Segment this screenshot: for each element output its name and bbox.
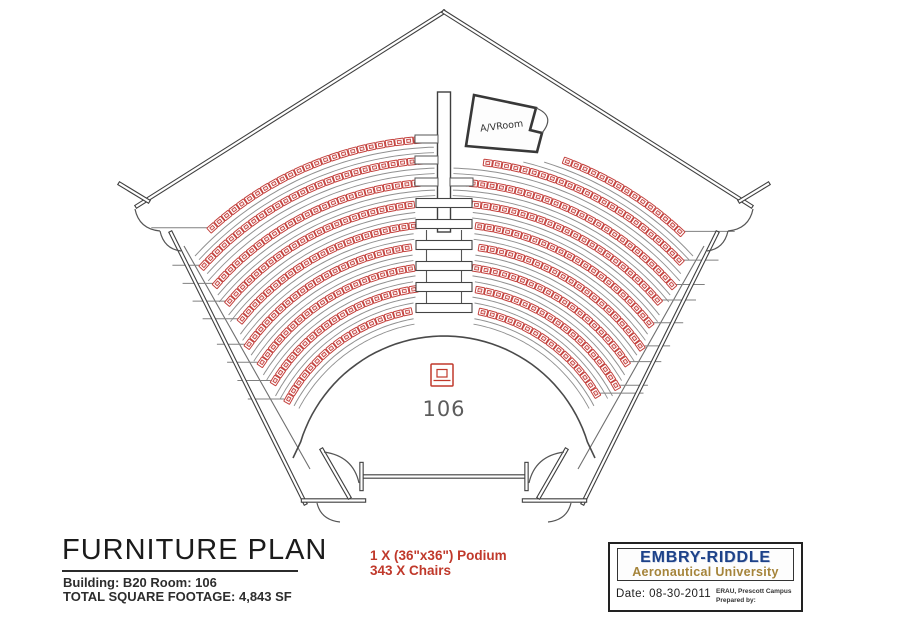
generated-plan-layer (120, 12, 768, 522)
av-room: A/VRoom (466, 95, 548, 152)
campus-line: ERAU, Prescott Campus (716, 587, 792, 596)
building-room-label: Building: B20 Room: 106 (63, 575, 217, 590)
stamp-fine-print: ERAU, Prescott Campus Prepared by: (716, 587, 792, 605)
prepared-by-line: Prepared by: (716, 596, 792, 605)
furniture-plan-page: A/VRoom 106 FURNITURE PLAN Building: B20… (0, 0, 900, 625)
center-aisle (415, 92, 473, 313)
legend-podium-line: 1 X (36"x36") Podium (370, 548, 507, 563)
podium-outline (431, 364, 453, 386)
square-footage-label: TOTAL SQUARE FOOTAGE: 4,843 SF (63, 589, 292, 604)
date-value: 08-30-2011 (649, 588, 711, 600)
logo-name-line2: Aeronautical University (618, 566, 793, 579)
floor-plan: A/VRoom 106 (0, 0, 900, 530)
logo-name-line1: EMBRY-RIDDLE (618, 549, 793, 566)
legend-chairs-line: 343 X Chairs (370, 563, 507, 578)
date-row: Date: 08-30-2011 (616, 588, 711, 600)
room-number-label: 106 (422, 397, 465, 421)
university-logo: EMBRY-RIDDLE Aeronautical University (617, 548, 794, 581)
furniture-legend: 1 X (36"x36") Podium 343 X Chairs (370, 548, 507, 578)
date-label: Date: (616, 588, 646, 600)
walls (120, 12, 768, 503)
page-title: FURNITURE PLAN (62, 534, 327, 567)
title-block-stamp: EMBRY-RIDDLE Aeronautical University Dat… (608, 542, 803, 612)
av-room-door-swing-icon (536, 108, 548, 133)
podium-icon (431, 364, 453, 386)
title-underline (62, 570, 298, 572)
